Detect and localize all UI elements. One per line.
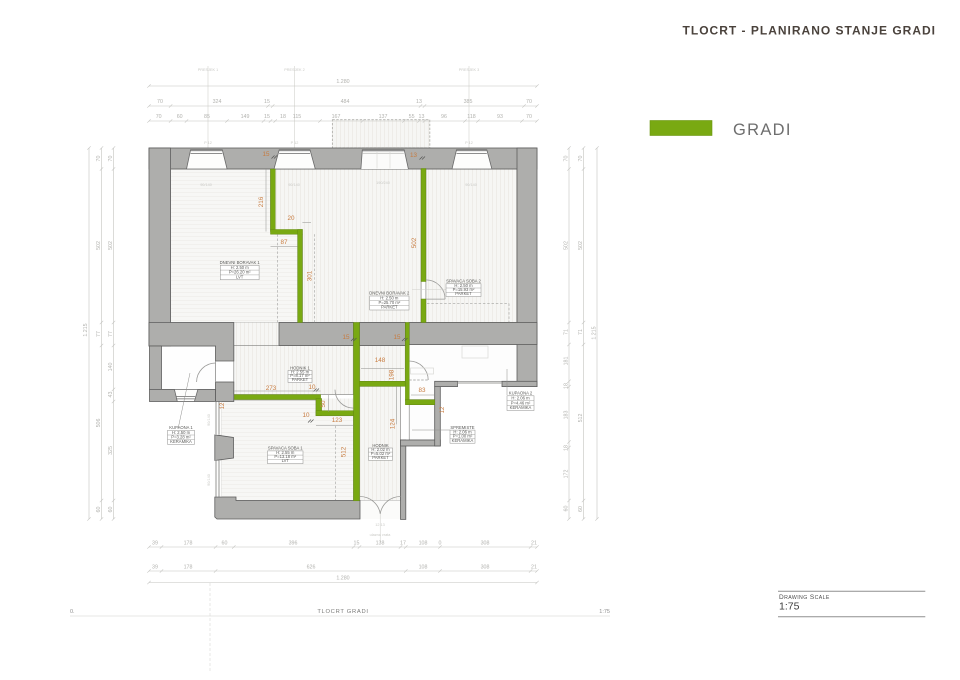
svg-text:77: 77 [96,331,102,337]
svg-text:0: 0 [439,541,442,547]
svg-text:198: 198 [389,369,396,380]
svg-text:115: 115 [293,114,301,120]
svg-text:77: 77 [108,331,114,337]
svg-text:1.280: 1.280 [336,576,349,582]
svg-text:190/240: 190/240 [376,181,390,185]
svg-text:502: 502 [564,241,570,250]
svg-text:60: 60 [108,507,114,513]
svg-text:93: 93 [497,114,503,120]
svg-text:15: 15 [264,99,270,105]
svg-text:1:75: 1:75 [599,609,610,615]
svg-text:60: 60 [564,506,570,512]
svg-text:70: 70 [526,114,532,120]
svg-text:502: 502 [578,241,584,250]
svg-text:15: 15 [342,334,350,341]
svg-text:39: 39 [152,565,158,571]
svg-text:15: 15 [354,541,360,547]
svg-text:PRESJEK 3: PRESJEK 3 [459,68,479,72]
svg-text:167: 167 [332,114,341,120]
svg-text:15: 15 [264,114,270,120]
svg-text:P 12: P 12 [204,141,212,145]
svg-text:172: 172 [564,470,570,479]
svg-text:90/140: 90/140 [465,183,477,187]
svg-text:140: 140 [108,363,114,372]
svg-text:PARKET: PARKET [455,291,472,296]
svg-text:1:75: 1:75 [779,601,800,613]
svg-text:PRESJEK 2: PRESJEK 2 [284,68,304,72]
svg-text:70: 70 [96,156,102,162]
svg-text:70: 70 [564,156,570,162]
svg-text:137: 137 [379,114,388,120]
svg-text:308: 308 [481,565,490,571]
svg-text:P 12: P 12 [291,141,299,145]
svg-text:GRADI: GRADI [733,121,792,139]
svg-text:108: 108 [419,541,428,547]
svg-text:71: 71 [578,329,584,335]
svg-text:385: 385 [464,99,473,105]
svg-text:70: 70 [108,156,114,162]
svg-text:18: 18 [564,383,570,389]
svg-text:71: 71 [564,329,570,335]
svg-text:18: 18 [280,114,286,120]
svg-text:87: 87 [280,239,288,246]
svg-text:138: 138 [376,541,385,547]
svg-text:60: 60 [96,507,102,513]
svg-text:15: 15 [262,151,270,158]
svg-text:LVT: LVT [282,458,290,463]
svg-text:P 12: P 12 [465,141,473,145]
svg-text:178: 178 [184,541,193,547]
svg-text:70: 70 [157,99,163,105]
svg-text:13: 13 [416,99,422,105]
svg-text:70: 70 [156,114,162,120]
svg-text:21: 21 [531,541,537,547]
svg-text:118: 118 [467,114,475,120]
svg-text:90/140: 90/140 [200,183,212,187]
svg-text:183: 183 [564,411,570,420]
svg-text:1.280: 1.280 [336,79,349,85]
svg-text:1.215: 1.215 [83,323,89,336]
svg-text:70: 70 [578,156,584,162]
svg-text:60: 60 [578,506,584,512]
svg-text:PARKET: PARKET [372,455,389,460]
svg-text:1.215: 1.215 [592,326,598,339]
svg-text:506: 506 [96,419,102,428]
svg-text:148: 148 [375,357,386,364]
svg-text:512: 512 [341,446,348,457]
svg-text:60: 60 [222,541,228,547]
svg-text:10: 10 [302,412,310,419]
svg-text:LVT: LVT [236,274,244,279]
svg-text:18: 18 [564,445,570,451]
svg-text:124: 124 [390,418,397,429]
svg-text:KERAMIKA: KERAMIKA [170,439,192,444]
svg-text:12 13: 12 13 [375,523,385,527]
svg-text:TLOCRT GRADI: TLOCRT GRADI [317,609,368,615]
svg-text:324: 324 [213,99,222,105]
svg-text:484: 484 [341,99,350,105]
svg-text:502: 502 [411,237,418,248]
svg-text:502: 502 [108,241,114,250]
svg-text:396: 396 [289,541,298,547]
svg-text:43: 43 [108,392,114,398]
svg-text:512: 512 [578,414,584,423]
svg-text:13: 13 [410,152,418,159]
svg-text:TLOCRT - PLANIRANO STANJE GRAD: TLOCRT - PLANIRANO STANJE GRADI [683,24,936,38]
svg-text:83: 83 [418,387,426,394]
svg-text:50: 50 [320,400,327,408]
svg-text:96: 96 [441,114,447,120]
svg-text:0.: 0. [70,609,75,615]
svg-text:39: 39 [152,541,158,547]
svg-text:123: 123 [332,417,343,424]
svg-text:308: 308 [481,541,490,547]
svg-text:626: 626 [307,565,316,571]
svg-text:KERAMIKA: KERAMIKA [510,405,532,410]
svg-text:108: 108 [419,565,428,571]
svg-text:55: 55 [409,114,415,120]
svg-text:PARKET: PARKET [381,305,398,310]
svg-text:PARKET: PARKET [292,377,309,382]
svg-text:KERAMIKA: KERAMIKA [452,438,474,443]
svg-text:90/140: 90/140 [288,183,300,187]
svg-text:ulazna vrata: ulazna vrata [370,533,392,537]
svg-text:181: 181 [564,357,570,366]
svg-text:90/140: 90/140 [207,474,211,486]
svg-text:325: 325 [108,446,114,455]
svg-text:178: 178 [184,565,193,571]
svg-text:PRESJEK 1: PRESJEK 1 [198,68,218,72]
svg-text:90/140: 90/140 [207,414,211,426]
svg-text:12: 12 [440,406,446,413]
svg-text:149: 149 [241,114,250,120]
svg-text:60: 60 [177,114,183,120]
svg-text:17: 17 [400,541,406,547]
svg-text:15: 15 [393,334,401,341]
svg-text:13: 13 [419,114,425,120]
svg-text:216: 216 [258,196,265,207]
svg-text:70: 70 [526,99,532,105]
svg-text:502: 502 [96,241,102,250]
svg-text:21: 21 [531,565,537,571]
svg-text:301: 301 [307,270,314,281]
svg-text:12: 12 [220,402,226,409]
svg-text:20: 20 [287,215,295,222]
svg-text:85: 85 [204,114,210,120]
